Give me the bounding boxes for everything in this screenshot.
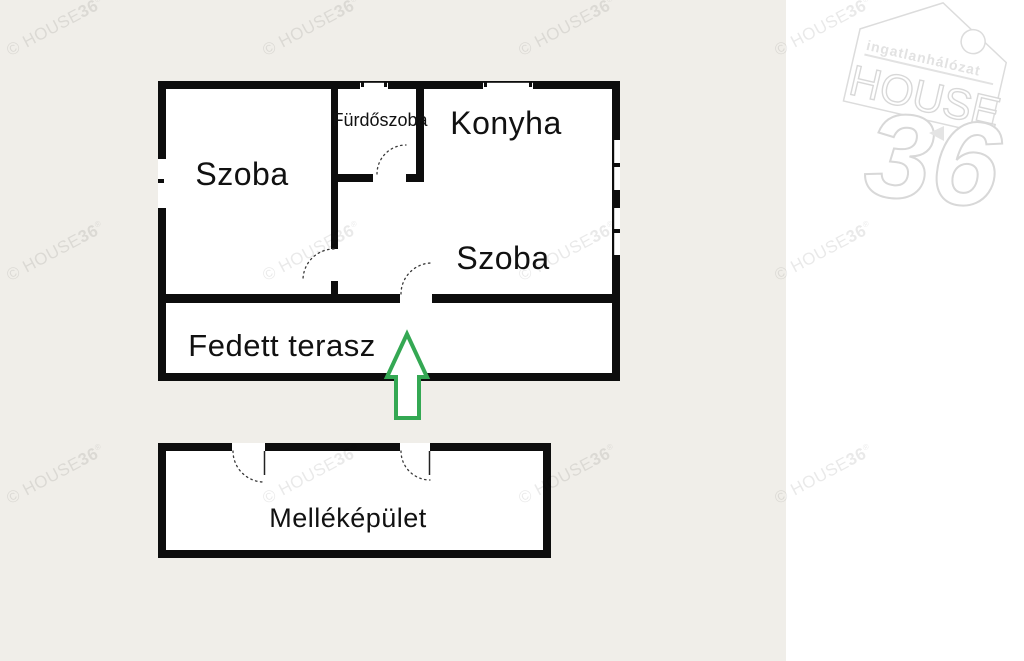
logo-number: 36 bbox=[859, 87, 1007, 234]
house36-logo: ingatlanhálózat HOUSE 36 bbox=[843, 0, 1021, 234]
room-label-szoba-left: Szoba bbox=[195, 158, 288, 190]
room-label-fedett-terasz: Fedett terasz bbox=[188, 330, 375, 361]
room-label-konyha: Konyha bbox=[450, 107, 562, 139]
room-label-mellekepulet: Melléképület bbox=[269, 505, 427, 532]
floorplan-drawing: ingatlanhálózat HOUSE 36 bbox=[0, 0, 1024, 661]
room-label-furdoszoba: Fürdőszoba bbox=[332, 111, 427, 129]
floorplan-image: ingatlanhálózat HOUSE 36 bbox=[0, 0, 1024, 661]
